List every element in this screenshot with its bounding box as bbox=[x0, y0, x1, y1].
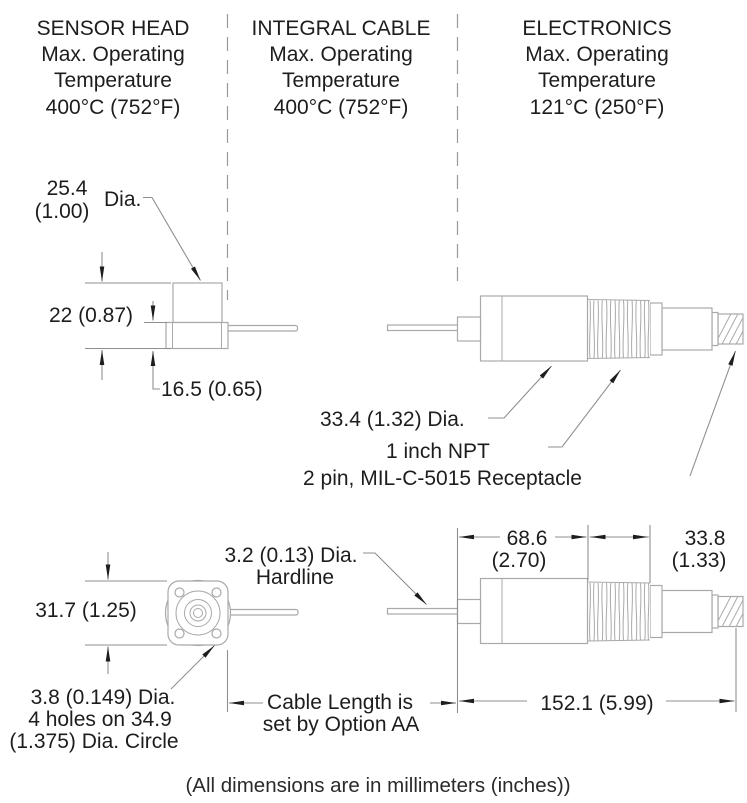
bolt-holes-line2: 4 holes on 34.9 bbox=[28, 708, 172, 731]
sensor-head-temp: 400°C (752°F) bbox=[46, 96, 181, 119]
head-height-dim: 22 (0.87) bbox=[49, 304, 133, 327]
integral-cable-line2: Max. Operating bbox=[269, 43, 413, 66]
electronics-title: ELECTRONICS bbox=[522, 17, 671, 40]
electronics-housing-view bbox=[458, 296, 747, 361]
electronics-len-in: (2.70) bbox=[492, 549, 547, 572]
head-dia-in: (1.00) bbox=[35, 200, 90, 223]
dimension-labels: 25.4 (1.00) Dia. 22 (0.87) 16.5 (0.65) 3… bbox=[9, 177, 726, 753]
integral-cable-title: INTEGRAL CABLE bbox=[252, 17, 431, 40]
electronics-line3: Temperature bbox=[538, 69, 656, 92]
technical-drawing: SENSOR HEAD Max. Operating Temperature 4… bbox=[0, 0, 747, 803]
head-flange bbox=[166, 323, 228, 349]
bolt-hole bbox=[175, 588, 184, 597]
dimension-drawing-page: SENSOR HEAD Max. Operating Temperature 4… bbox=[0, 0, 747, 803]
hardline-label: Hardline bbox=[256, 566, 334, 589]
tip-step bbox=[712, 313, 718, 346]
npt-threads bbox=[588, 300, 651, 359]
head-block bbox=[173, 283, 222, 323]
electronics-temp: 121°C (250°F) bbox=[530, 96, 665, 119]
integral-cable-line3: Temperature bbox=[282, 69, 400, 92]
base-height-dim: 16.5 (0.65) bbox=[161, 378, 263, 401]
cable-length-line2: set by Option AA bbox=[263, 713, 419, 736]
hardline-dia-dim: 3.2 (0.13) Dia. bbox=[224, 544, 357, 567]
dia-label: Dia. bbox=[104, 188, 141, 211]
sensor-head-line3: Temperature bbox=[54, 69, 172, 92]
dia-leader bbox=[143, 198, 201, 281]
sensor-head-line2: Max. Operating bbox=[41, 43, 185, 66]
bolt-holes-line3: (1.375) Dia. Circle bbox=[9, 730, 178, 753]
sensor-head-title: SENSOR HEAD bbox=[37, 17, 190, 40]
receptacle-leader bbox=[690, 351, 736, 476]
bolt-holes-line1: 3.8 (0.149) Dia. bbox=[31, 686, 176, 709]
cable-length-line1: Cable Length is bbox=[267, 691, 413, 714]
cable-segment bbox=[228, 610, 298, 616]
overall-len-dim: 152.1 (5.99) bbox=[540, 692, 653, 715]
bolt-hole-leader bbox=[171, 646, 215, 690]
thread-len-mm: 33.8 bbox=[685, 527, 726, 550]
cable-segment bbox=[228, 326, 298, 332]
thread-len-in: (1.33) bbox=[672, 549, 727, 572]
electronics-housing-bottom bbox=[458, 579, 747, 644]
body-dia-leader bbox=[488, 366, 552, 418]
body-dia-dim: 33.4 (1.32) Dia. bbox=[320, 408, 465, 431]
column-headers: SENSOR HEAD Max. Operating Temperature 4… bbox=[37, 17, 672, 119]
bolt-hole bbox=[175, 629, 184, 638]
integral-cable-temp: 400°C (752°F) bbox=[274, 96, 409, 119]
receptacle-label: 2 pin, MIL-C-5015 Receptacle bbox=[303, 467, 582, 490]
sensor-head-side-view bbox=[166, 283, 228, 349]
electronics-len-mm: 68.6 bbox=[507, 527, 548, 550]
bolt-hole bbox=[212, 629, 221, 638]
main-body bbox=[481, 296, 588, 361]
cable-entry-collar bbox=[458, 317, 481, 341]
bolt-hole bbox=[212, 588, 221, 597]
units-note: (All dimensions are in millimeters (inch… bbox=[185, 774, 570, 797]
thread-ring bbox=[650, 303, 662, 355]
rear-cylinder bbox=[662, 308, 712, 350]
cable-segment bbox=[388, 609, 459, 615]
flange-width-dim: 31.7 (1.25) bbox=[35, 599, 137, 622]
hardline-leader bbox=[363, 553, 427, 605]
sensor-head-front-view bbox=[166, 581, 231, 646]
npt-label: 1 inch NPT bbox=[386, 440, 490, 463]
cable-segment bbox=[388, 325, 459, 331]
cable-bottom-row bbox=[228, 609, 458, 616]
electronics-line2: Max. Operating bbox=[525, 43, 669, 66]
npt-leader bbox=[548, 370, 621, 447]
head-dia-mm: 25.4 bbox=[47, 177, 88, 200]
cable-top-row bbox=[228, 325, 459, 331]
